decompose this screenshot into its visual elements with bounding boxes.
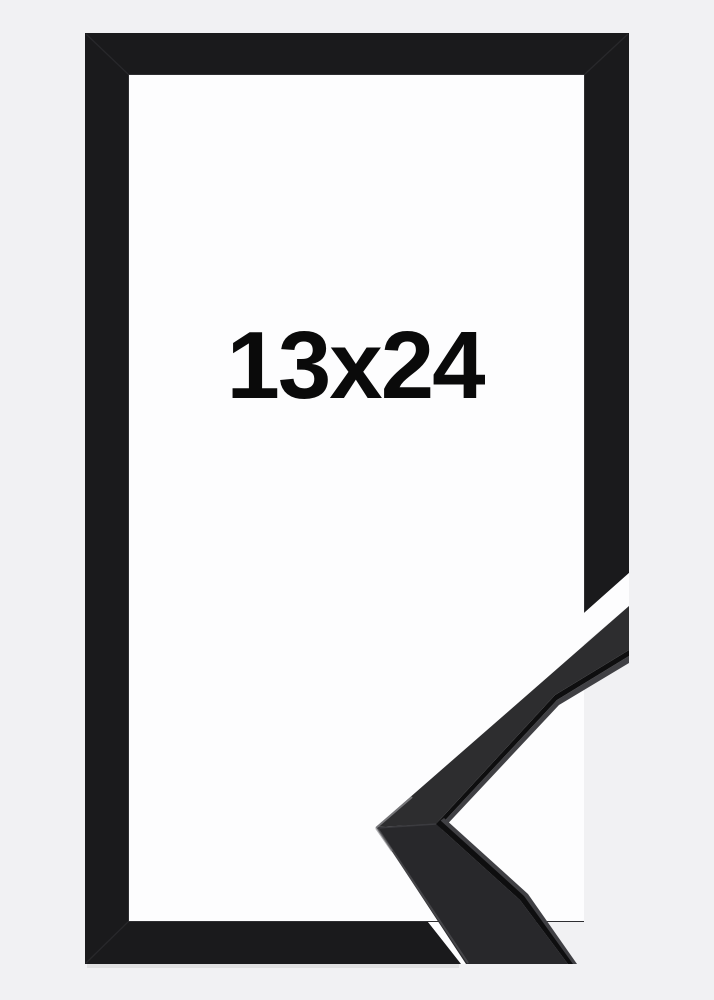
frame-product-photo: 13x24 (0, 0, 714, 1000)
size-label: 13x24 (227, 312, 486, 419)
frame-drop-shadow (87, 964, 459, 968)
picture-window (128, 74, 585, 922)
